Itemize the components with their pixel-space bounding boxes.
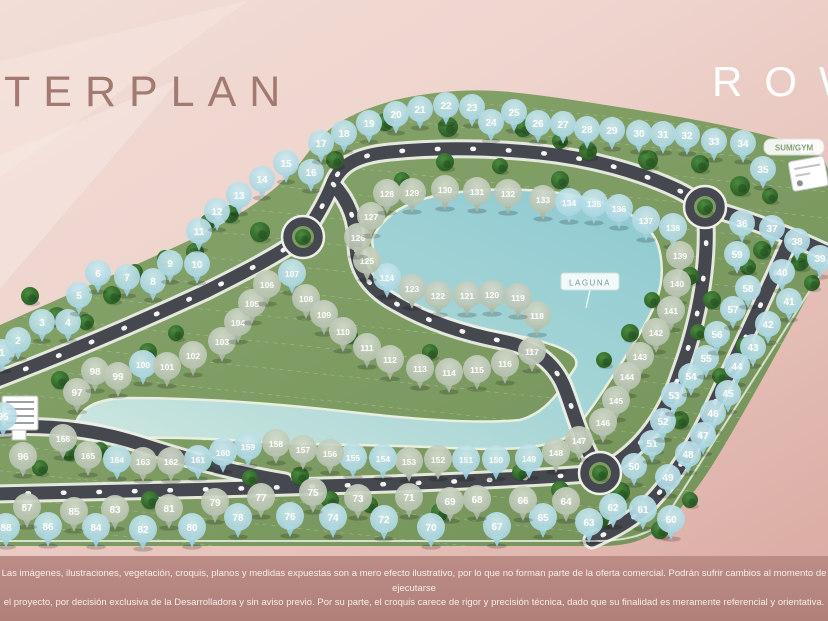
lot-number: 3 — [39, 318, 45, 329]
lot-number: 120 — [485, 290, 499, 300]
svg-text:LAGUNA: LAGUNA — [569, 279, 611, 288]
lot-number: 123 — [405, 284, 419, 294]
lot-number: 73 — [352, 494, 364, 505]
lot-number: 20 — [390, 110, 402, 121]
lot-number: 161 — [191, 455, 205, 465]
lot-number: 84 — [90, 523, 102, 534]
lot-number: 146 — [596, 418, 610, 428]
lot-number: 66 — [517, 496, 529, 507]
lot-number: 16 — [305, 168, 317, 179]
lot-number: 46 — [707, 409, 719, 420]
lot-number: 68 — [471, 495, 483, 506]
lot-number: 58 — [742, 284, 754, 295]
lot-number: 96 — [17, 452, 29, 463]
lot-number: 54 — [685, 372, 697, 383]
lot-number: 87 — [21, 503, 33, 514]
lot-number: 99 — [112, 372, 124, 383]
lot-number: 56 — [711, 330, 723, 341]
lot-number: 9 — [167, 259, 173, 270]
lot-number: 57 — [727, 305, 739, 316]
lot-number: 149 — [522, 454, 536, 464]
lot-number: 86 — [42, 522, 54, 533]
lot-number: 140 — [670, 279, 684, 289]
lot-number: 71 — [403, 493, 415, 504]
lot-number: 52 — [657, 417, 669, 428]
lot-number: 155 — [346, 453, 360, 463]
lot-number: 36 — [736, 219, 748, 230]
lot-number: 88 — [0, 523, 12, 534]
lot-number: 111 — [360, 343, 374, 353]
lot-number: 17 — [315, 139, 327, 150]
lot-number: 22 — [440, 101, 452, 112]
lot-number: 75 — [307, 488, 319, 499]
lot-number: 55 — [700, 354, 712, 365]
lot-number: 70 — [425, 523, 437, 534]
lot-number: 141 — [664, 306, 678, 316]
lot-number: 143 — [633, 352, 647, 362]
lot-number: 32 — [681, 131, 693, 142]
lot-number: 38 — [791, 237, 803, 248]
disclaimer-line-1: Las imágenes, ilustraciones, vegetación,… — [0, 567, 828, 596]
lot-number: 135 — [587, 199, 601, 209]
lot-number: 153 — [402, 457, 416, 467]
lot-number: 81 — [163, 504, 175, 515]
lot-number: 107 — [285, 269, 299, 279]
lot-number: 119 — [511, 293, 525, 303]
lot-number: 166 — [56, 434, 70, 444]
lot-number: 154 — [376, 454, 390, 464]
lot-number: 34 — [737, 139, 749, 150]
lot-number: 74 — [327, 513, 339, 524]
lot-number: 60 — [665, 515, 677, 526]
masterplan-page: TERPLAN ROW — [0, 0, 828, 621]
lot-number: 78 — [232, 513, 244, 524]
lot-number: 64 — [560, 497, 572, 508]
lot-number: 136 — [612, 204, 626, 214]
lot-number: 44 — [731, 362, 743, 373]
lot-number: 98 — [89, 367, 101, 378]
lot-marker-82[interactable]: 82 — [129, 515, 157, 552]
lot-number: 103 — [215, 337, 229, 347]
lot-number: 39 — [814, 254, 826, 265]
lot-number: 131 — [470, 187, 484, 197]
lot-number: 137 — [639, 216, 653, 226]
lot-number: 28 — [581, 125, 593, 136]
lot-number: 129 — [405, 188, 419, 198]
svg-text:SUM/GYM: SUM/GYM — [775, 144, 814, 153]
lot-number: 115 — [470, 365, 484, 375]
amenity-label: SUM/GYM — [764, 139, 824, 155]
lot-number: 8 — [150, 277, 156, 288]
lot-number: 62 — [607, 503, 619, 514]
lot-number: 85 — [68, 507, 80, 518]
lot-number: 6 — [95, 269, 101, 280]
roundabout — [684, 186, 726, 228]
lot-number: 29 — [606, 126, 618, 137]
lot-number: 124 — [380, 273, 394, 283]
disclaimer-line-2: el proyecto, por decisión exclusiva de l… — [0, 596, 828, 611]
lot-number: 138 — [666, 223, 680, 233]
lot-number: 41 — [783, 297, 795, 308]
lot-number: 14 — [256, 175, 268, 186]
lot-number: 165 — [81, 451, 95, 461]
lot-number: 110 — [336, 327, 350, 337]
lot-number: 47 — [697, 431, 709, 442]
lot-number: 5 — [76, 291, 82, 302]
lot-number: 106 — [260, 280, 274, 290]
lot-number: 69 — [444, 497, 456, 508]
lot-number: 23 — [466, 103, 478, 114]
lot-number: 144 — [620, 372, 634, 382]
lot-number: 109 — [317, 310, 331, 320]
lot-number: 35 — [757, 165, 769, 176]
lot-number: 42 — [762, 320, 774, 331]
lot-number: 80 — [186, 523, 198, 534]
lot-number: 76 — [284, 512, 296, 523]
lot-number: 83 — [109, 505, 121, 516]
lot-number: 148 — [549, 448, 563, 458]
lot-number: 15 — [280, 159, 292, 170]
lot-number: 67 — [491, 522, 503, 533]
lot-number: 1 — [0, 348, 5, 359]
lot-number: 112 — [383, 355, 397, 365]
lot-number: 163 — [136, 457, 150, 467]
lot-number: 40 — [776, 268, 788, 279]
lot-number: 97 — [71, 388, 83, 399]
lot-number: 100 — [136, 360, 150, 370]
lot-number: 162 — [164, 457, 178, 467]
lot-number: 21 — [414, 105, 426, 116]
lot-number: 151 — [459, 455, 473, 465]
roundabout — [282, 216, 324, 258]
lot-number: 4 — [65, 318, 71, 329]
lot-number: 13 — [233, 191, 245, 202]
lot-number: 132 — [501, 189, 515, 199]
lot-number: 43 — [747, 343, 759, 354]
lot-number: 118 — [530, 311, 544, 321]
lot-number: 160 — [216, 448, 230, 458]
masterplan-map: 1234567891011121314151617181920212223242… — [0, 0, 828, 621]
lot-number: 158 — [269, 439, 283, 449]
lot-number: 127 — [364, 212, 378, 222]
lot-number: 133 — [536, 195, 550, 205]
tree-icon — [21, 287, 40, 306]
lot-number: 10 — [191, 260, 203, 271]
lot-number: 116 — [498, 359, 512, 369]
lot-number: 152 — [431, 455, 445, 465]
lot-number: 142 — [649, 328, 663, 338]
lot-number: 65 — [537, 513, 549, 524]
lot-number: 121 — [460, 291, 474, 301]
lot-number: 30 — [633, 129, 645, 140]
lot-number: 2 — [15, 336, 21, 347]
lot-number: 130 — [438, 185, 452, 195]
lot-number: 7 — [124, 273, 130, 284]
lot-number: 156 — [323, 449, 337, 459]
lot-number: 24 — [485, 118, 497, 129]
lot-number: 101 — [160, 362, 174, 372]
lot-number: 25 — [508, 108, 520, 119]
lot-number: 145 — [609, 396, 623, 406]
lot-number: 31 — [657, 130, 669, 141]
lot-number: 122 — [431, 291, 445, 301]
lot-number: 79 — [209, 498, 221, 509]
lot-number: 19 — [363, 119, 375, 130]
lot-number: 150 — [489, 455, 503, 465]
lot-number: 134 — [562, 198, 576, 208]
lot-number: 59 — [731, 250, 743, 261]
lot-number: 95 — [0, 412, 9, 423]
tree-icon — [682, 492, 699, 509]
lot-number: 139 — [673, 251, 687, 261]
lot-number: 48 — [682, 450, 694, 461]
lot-number: 113 — [413, 364, 427, 374]
lot-number: 37 — [766, 224, 778, 235]
disclaimer-band: Las imágenes, ilustraciones, vegetación,… — [0, 556, 828, 621]
lot-number: 26 — [532, 119, 544, 130]
lot-number: 77 — [255, 493, 267, 504]
lot-number: 164 — [110, 455, 124, 465]
lot-number: 49 — [662, 473, 674, 484]
lot-number: 105 — [245, 299, 259, 309]
lot-number: 63 — [583, 518, 595, 529]
lot-number: 27 — [557, 120, 569, 131]
lot-number: 147 — [572, 436, 586, 446]
lot-number: 159 — [241, 442, 255, 452]
lot-number: 12 — [211, 207, 223, 218]
lot-number: 11 — [194, 227, 205, 238]
lot-number: 33 — [708, 137, 720, 148]
lot-number: 18 — [338, 129, 350, 140]
lot-number: 157 — [296, 445, 310, 455]
lot-number: 108 — [299, 294, 313, 304]
lot-number: 72 — [378, 515, 390, 526]
lot-number: 50 — [628, 462, 640, 473]
lot-number: 102 — [186, 351, 200, 361]
lot-number: 114 — [442, 368, 456, 378]
lot-number: 61 — [637, 505, 649, 516]
lot-number: 117 — [525, 347, 539, 357]
lot-number: 53 — [668, 391, 680, 402]
lot-number: 128 — [380, 189, 394, 199]
lot-number: 45 — [722, 389, 734, 400]
lot-number: 82 — [137, 525, 149, 536]
